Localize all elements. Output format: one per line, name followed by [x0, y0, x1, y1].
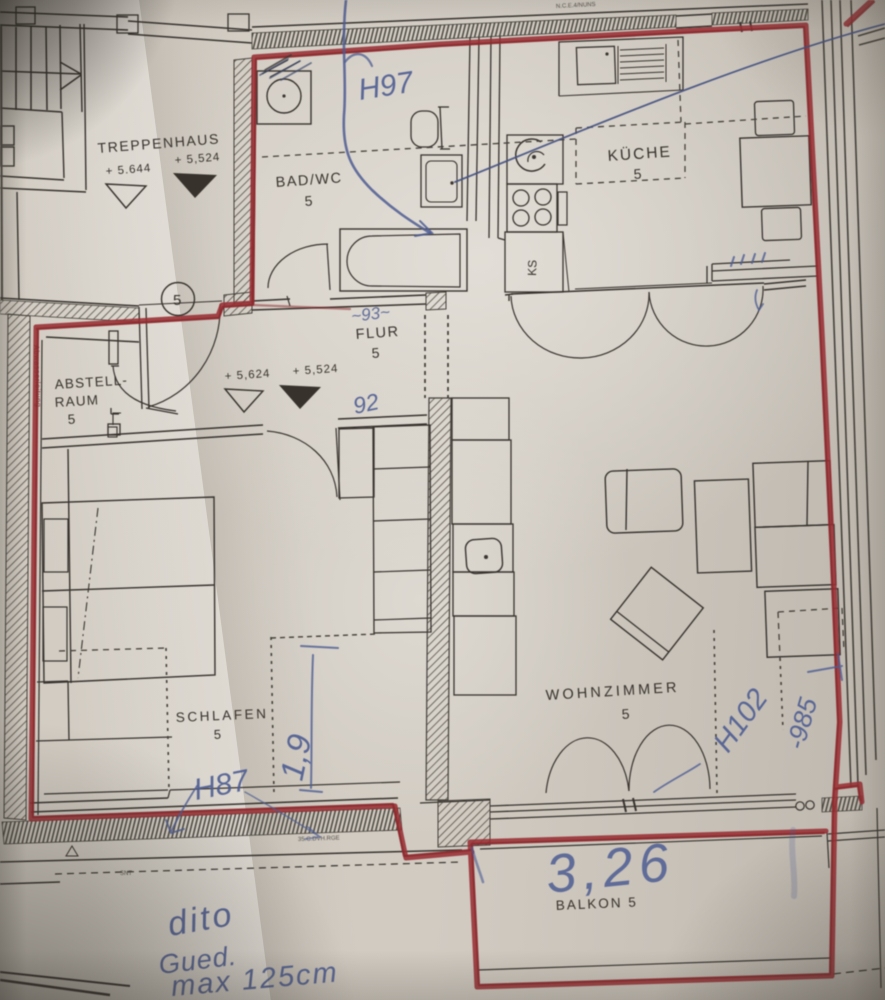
svg-text:WOHNZIMMER: WOHNZIMMER [545, 680, 680, 704]
svg-text:KS: KS [525, 260, 540, 276]
svg-text:5: 5 [633, 165, 642, 182]
svg-text:5: 5 [67, 412, 75, 427]
svg-text:5: 5 [621, 706, 630, 722]
svg-text:SNT: SNT [120, 871, 132, 877]
svg-text:H87: H87 [191, 764, 253, 807]
svg-text:+ 5,524: + 5,524 [292, 363, 338, 378]
svg-text:~93~: ~93~ [350, 302, 391, 326]
svg-text:-985: -985 [780, 694, 823, 753]
svg-text:dito: dito [165, 895, 237, 944]
svg-text:FLUR: FLUR [355, 324, 400, 343]
svg-text:5: 5 [304, 192, 313, 209]
svg-text:3,26: 3,26 [543, 832, 678, 905]
svg-text:92: 92 [351, 388, 382, 419]
svg-text:SCHLAFEN: SCHLAFEN [175, 706, 268, 725]
svg-text:BAD/WC: BAD/WC [275, 170, 343, 191]
svg-text:5: 5 [213, 727, 221, 742]
svg-text:H102: H102 [708, 683, 775, 758]
svg-text:+ 5.644: + 5.644 [105, 162, 152, 178]
svg-text:+ 5,524: + 5,524 [174, 151, 221, 167]
svg-text:RAUM: RAUM [54, 392, 99, 410]
svg-text:+ 5,624: + 5,624 [224, 368, 270, 383]
svg-text:H97: H97 [356, 66, 417, 107]
svg-text:N.C.E.4/NUNS: N.C.E.4/NUNS [556, 2, 596, 10]
svg-text:5: 5 [173, 292, 181, 309]
svg-text:ABSTELL-: ABSTELL- [54, 373, 128, 392]
svg-text:5: 5 [371, 344, 380, 361]
svg-text:KÜCHE: KÜCHE [607, 143, 672, 165]
